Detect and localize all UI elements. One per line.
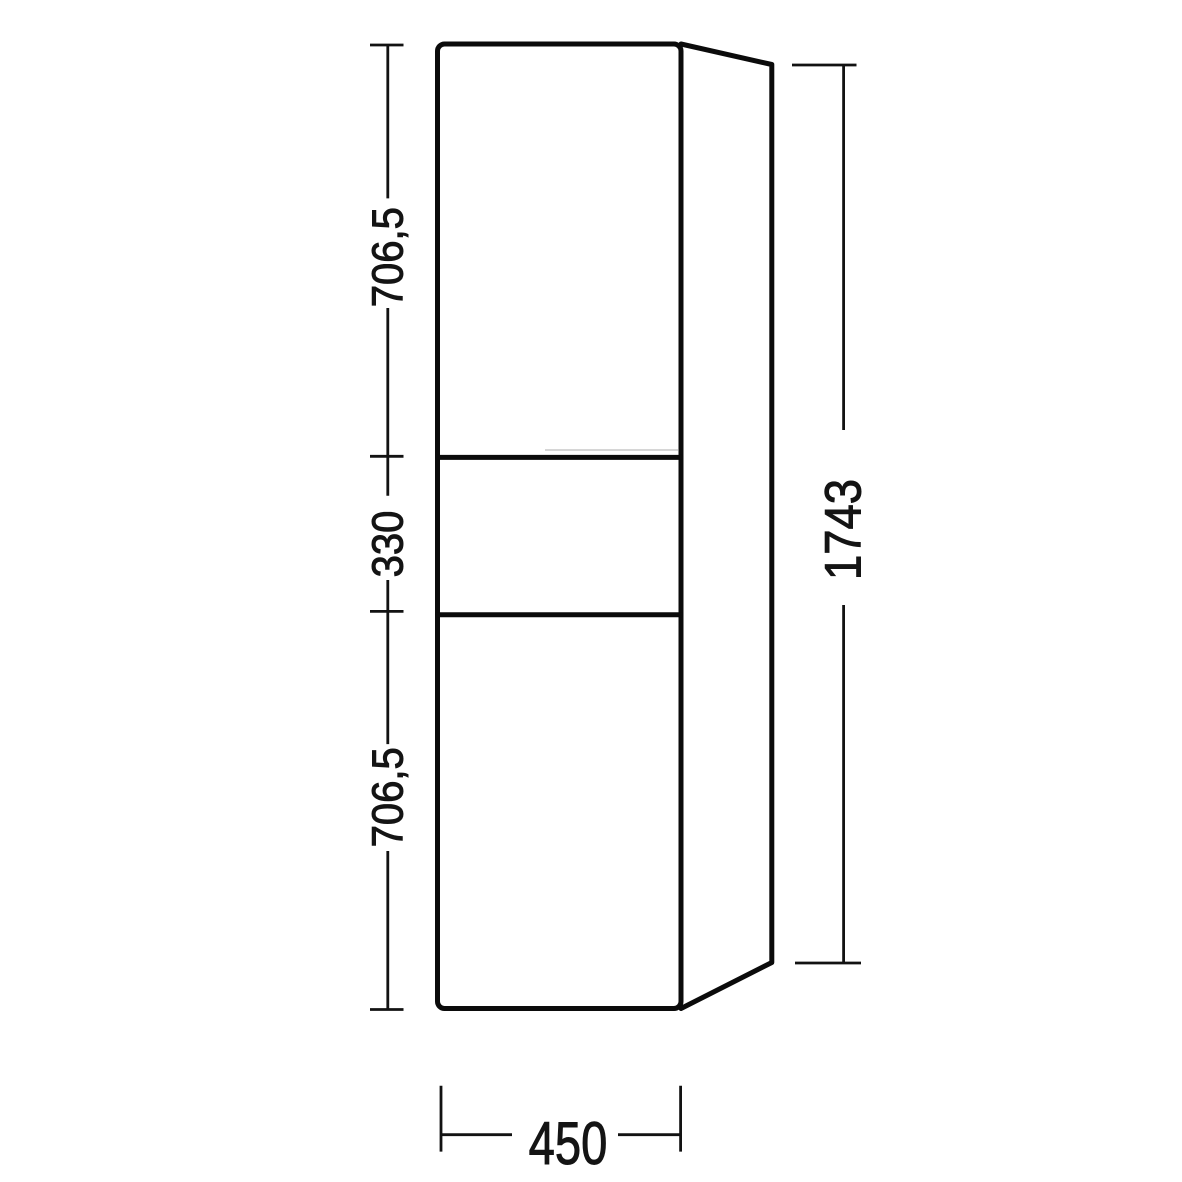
svg-text:330: 330 [363,511,412,578]
svg-text:1743: 1743 [815,479,872,580]
svg-text:706,5: 706,5 [363,747,412,847]
svg-text:450: 450 [529,1110,608,1177]
svg-text:706,5: 706,5 [363,207,412,307]
